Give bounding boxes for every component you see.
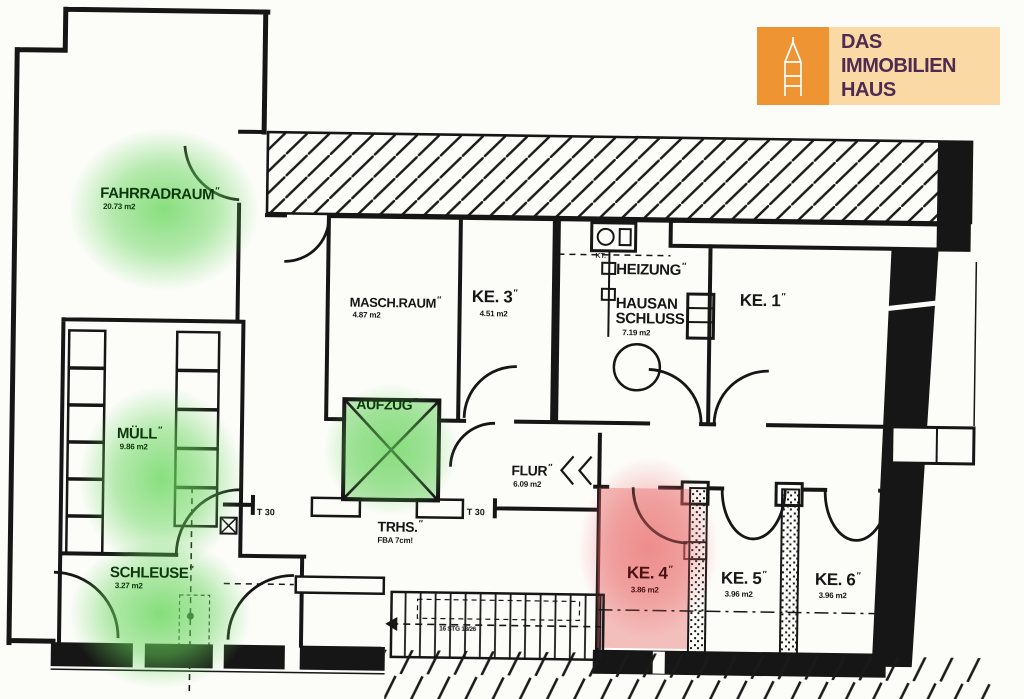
handwritten-mark: ″ bbox=[413, 396, 417, 406]
wall-niche bbox=[892, 427, 974, 464]
room-label-ke4: KE. 4″ bbox=[627, 563, 673, 584]
handwritten-mark: ″ bbox=[682, 261, 686, 271]
brand-line-3: HAUS bbox=[841, 78, 1000, 102]
room-area-hausanschluss: 7.19 m2 bbox=[622, 328, 650, 337]
church-tower-icon bbox=[773, 34, 813, 98]
room-label-aufzug: AUFZUG″ bbox=[356, 395, 417, 413]
room-label-heizung: HEIZUNG″ bbox=[616, 260, 686, 279]
brand-line-1: DAS bbox=[841, 30, 1000, 54]
room-area-flur: 6.09 m2 bbox=[513, 480, 541, 489]
room-area-ke5: 3.96 m2 bbox=[725, 590, 753, 599]
room-label-ke6: KE. 6″ bbox=[815, 570, 861, 591]
room-area-ke3: 4.51 m2 bbox=[480, 309, 508, 318]
break-chevrons bbox=[561, 456, 591, 484]
stair-note: 16 STG 18/26 bbox=[439, 626, 476, 634]
fire-door-label-right: T 30 bbox=[467, 507, 485, 517]
room-area-fahrradraum: 20.73 m2 bbox=[103, 202, 135, 211]
room-label-schleuse: SCHLEUSE″ bbox=[110, 563, 194, 582]
room-label-muell: MÜLL″ bbox=[117, 424, 162, 443]
handwritten-mark: ″ bbox=[419, 518, 423, 528]
room-area-ke4: 3.86 m2 bbox=[631, 585, 659, 594]
handwritten-mark: ″ bbox=[513, 288, 517, 298]
room-label-ke1: KE. 1″ bbox=[740, 291, 786, 312]
room-label-fahrradraum: FAHRRADRAUM″ bbox=[100, 184, 219, 204]
label-kt-symbol: KT. bbox=[595, 253, 606, 260]
room-label-flur: FLUR″ bbox=[511, 462, 552, 479]
brand-logo-text: DAS IMMOBILIEN HAUS bbox=[829, 27, 1000, 105]
room-area-muell: 9.86 m2 bbox=[120, 442, 148, 451]
room-area-ke6: 3.96 m2 bbox=[819, 591, 847, 600]
brand-line-2: IMMOBILIEN bbox=[841, 54, 1000, 78]
handwritten-mark: ″ bbox=[158, 425, 162, 435]
handwritten-mark: ″ bbox=[189, 564, 193, 574]
outer-walls bbox=[9, 9, 268, 646]
handwritten-mark: ″ bbox=[215, 185, 219, 195]
brand-logo: DAS IMMOBILIEN HAUS bbox=[757, 27, 1000, 105]
room-label-ke3: KE. 3″ bbox=[472, 287, 518, 308]
handwritten-mark: ″ bbox=[669, 564, 673, 574]
room-area-masch-raum: 4.87 m2 bbox=[353, 310, 381, 319]
floor-plan-scan: DAS IMMOBILIEN HAUS bbox=[0, 0, 1024, 699]
handwritten-mark: ″ bbox=[437, 294, 441, 304]
waste-bins bbox=[66, 330, 239, 555]
room-note-trhs: FBA 7cm! bbox=[377, 536, 413, 545]
room-area-schleuse: 3.27 m2 bbox=[115, 581, 143, 590]
elevator-symbol bbox=[343, 399, 439, 500]
fire-door-label-left: T 30 bbox=[257, 507, 275, 517]
room-label-hausanschluss-2: SCHLUSS bbox=[615, 310, 684, 328]
handwritten-mark: ″ bbox=[762, 569, 766, 579]
room-label-ke5: KE. 5″ bbox=[721, 568, 767, 589]
handwritten-mark: ″ bbox=[856, 571, 860, 581]
room-label-masch-raum: MASCH.RAUM″ bbox=[350, 293, 441, 311]
brand-logo-mark bbox=[757, 27, 829, 105]
room-label-trhs: TRHS.″ bbox=[378, 518, 423, 535]
handwritten-mark: ″ bbox=[548, 462, 552, 472]
handwritten-mark: ″ bbox=[781, 292, 785, 302]
